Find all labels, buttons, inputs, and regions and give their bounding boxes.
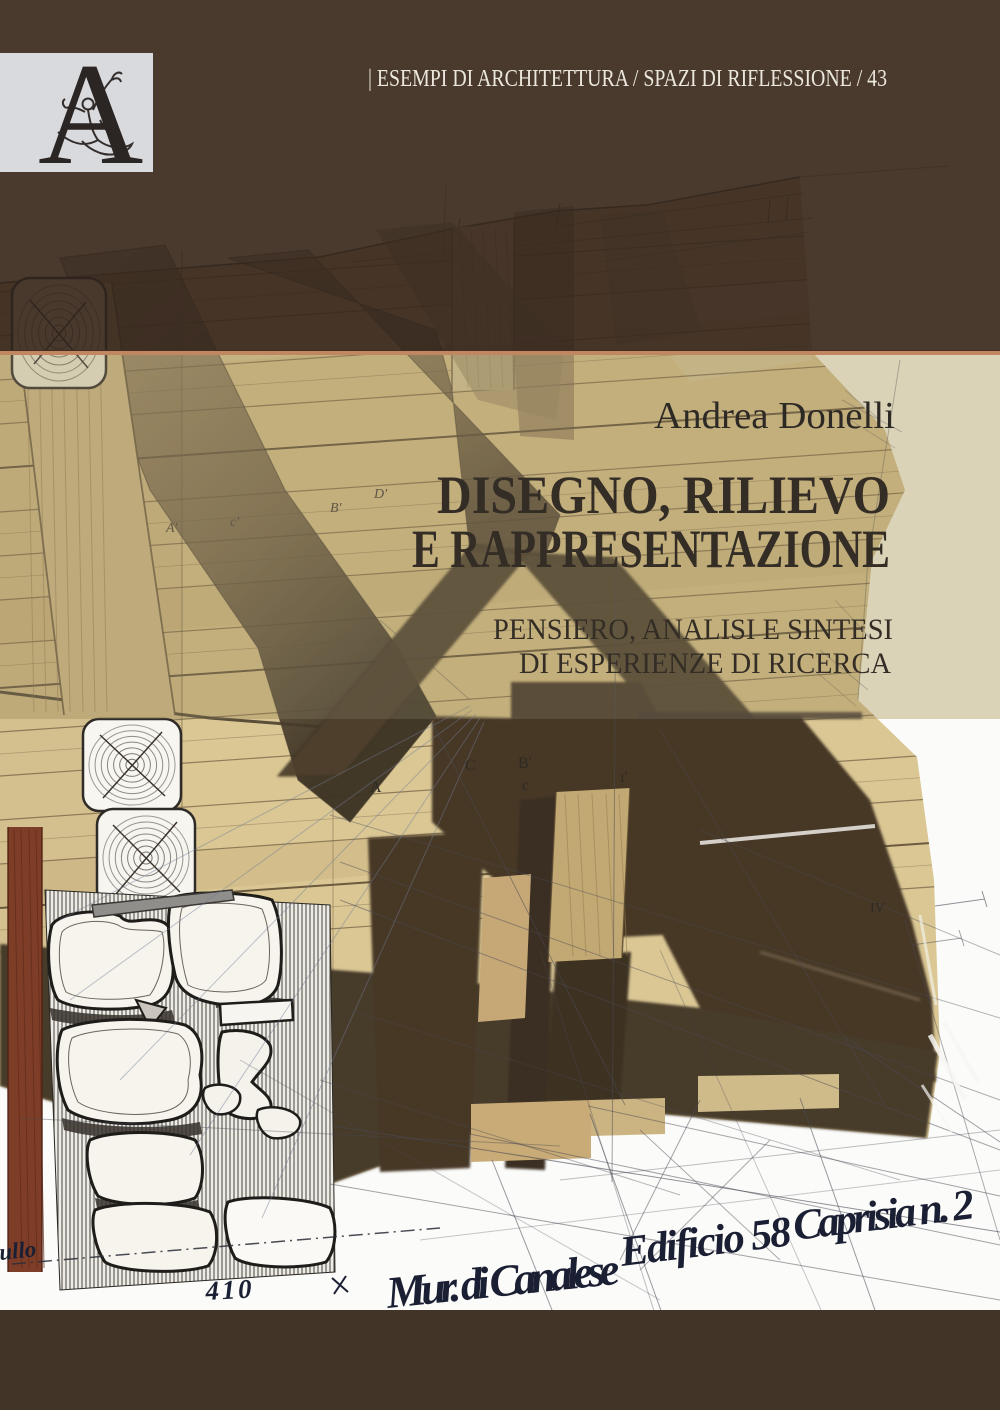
svg-text:E RAPPRESENTAZIONE: E RAPPRESENTAZIONE <box>412 519 890 579</box>
svg-text:c: c <box>522 777 529 794</box>
svg-text:ı': ı' <box>620 769 627 786</box>
svg-text:C: C <box>465 757 476 774</box>
svg-text:| ESEMPI DI ARCHITETTURA / SPA: | ESEMPI DI ARCHITETTURA / SPAZI DI RIFL… <box>368 66 887 92</box>
svg-text:DI ESPERIENZE DI RICERCA: DI ESPERIENZE DI RICERCA <box>519 647 891 680</box>
svg-text:ullo: ullo <box>0 1236 37 1265</box>
svg-text:DISEGNO, RILIEVO: DISEGNO, RILIEVO <box>437 465 890 525</box>
svg-text:B': B' <box>518 755 532 772</box>
svg-text:A: A <box>38 33 143 195</box>
svg-text:A: A <box>370 779 382 796</box>
svg-text:IV: IV <box>870 901 885 916</box>
svg-text:Andrea Donelli: Andrea Donelli <box>654 395 895 437</box>
svg-text:PENSIERO, ANALISI E SINTESI: PENSIERO, ANALISI E SINTESI <box>493 613 893 646</box>
svg-text:410: 410 <box>204 1274 253 1306</box>
